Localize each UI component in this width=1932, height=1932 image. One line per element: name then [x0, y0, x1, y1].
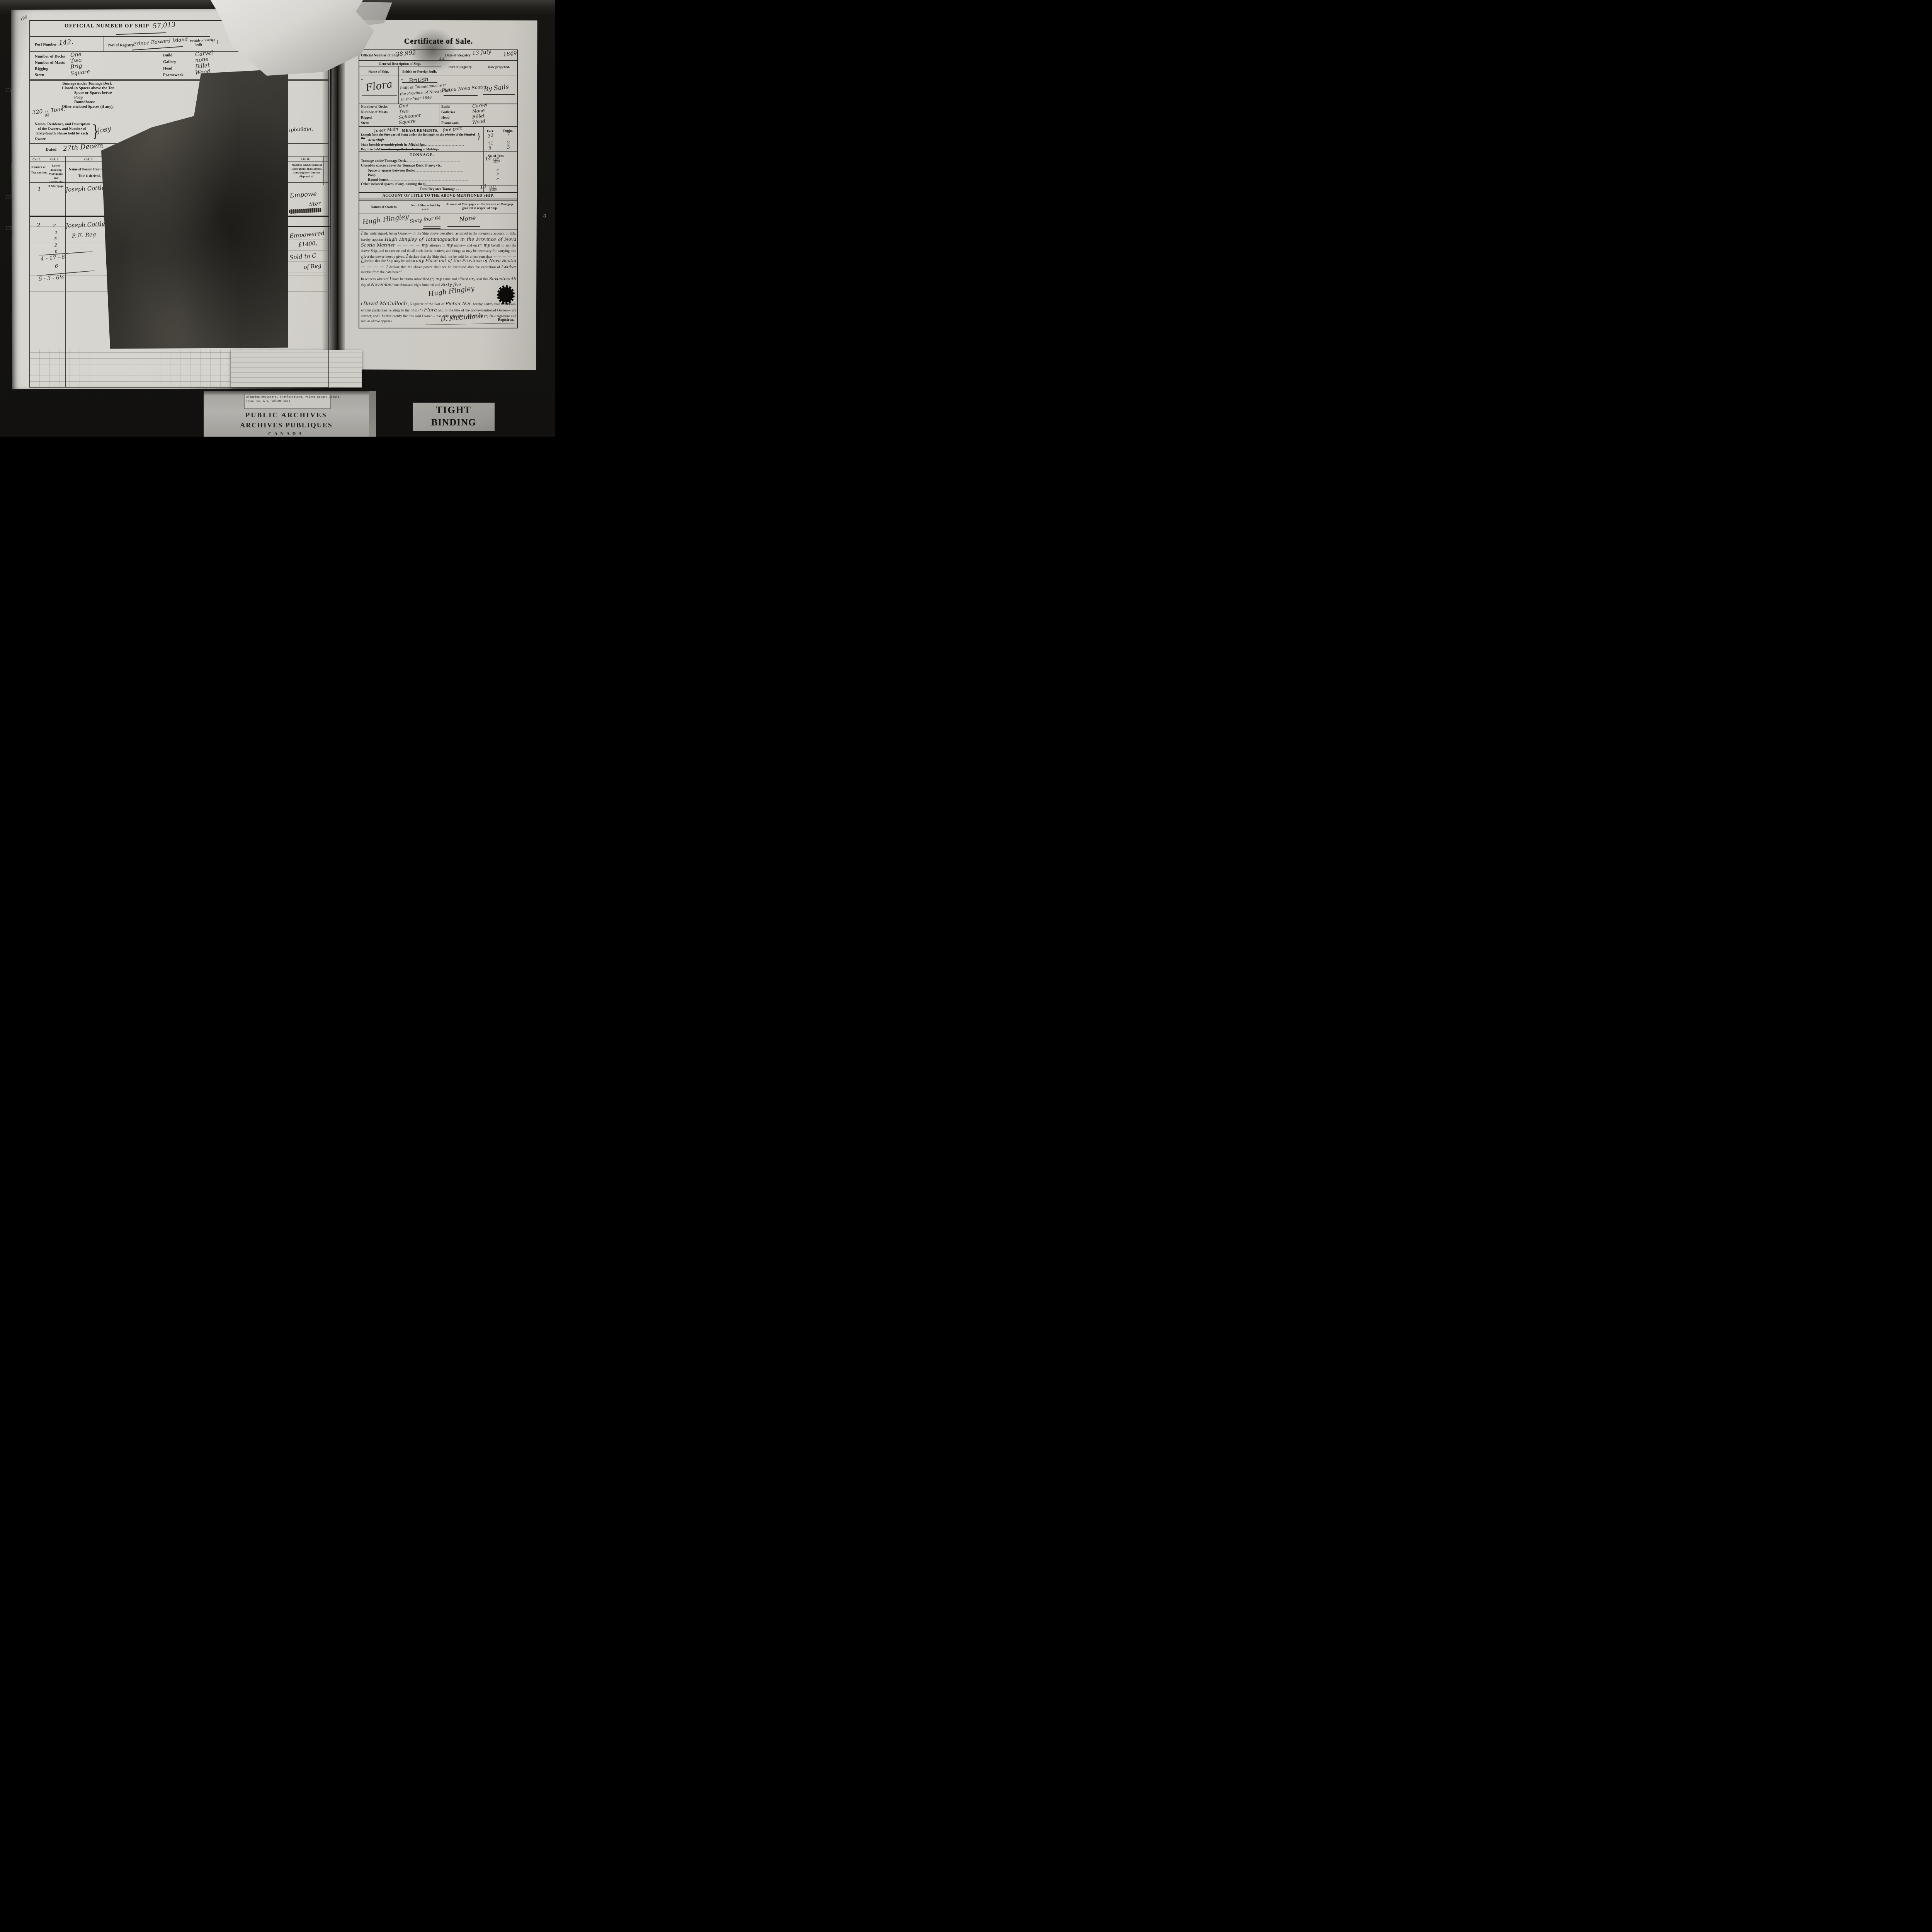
account-title-heading: ACCOUNT OF TITLE TO THE ABOVE-MENTIONED … [359, 194, 517, 198]
t-label: Space or spaces between Decks [368, 168, 415, 172]
measure-feet: 32 [487, 133, 494, 139]
p-script: David McCulloch [363, 301, 407, 307]
p-script: my [484, 243, 490, 248]
rule [359, 104, 517, 104]
spec-label: Build [441, 105, 450, 109]
p-script: my [422, 243, 428, 248]
m-strike: from Tonnage Deck to Ceiling [381, 148, 422, 151]
m-strike: aft side [445, 133, 455, 136]
t-frac: 16323500 [493, 157, 501, 163]
tonnage-row: Space or spaces between Decks [368, 168, 482, 172]
t-label: Tonnage under Tonnage Deck [361, 159, 406, 163]
p-print: name and affixed [442, 277, 469, 281]
cs-date-label: Date of Registry [445, 54, 471, 58]
tonnage-row: Closed-in spaces above the Tonnage Deck,… [361, 163, 482, 167]
wax-seal [497, 285, 515, 304]
rule [444, 95, 478, 96]
typed-line1: Shipping Registers. Charlottetown, Princ… [246, 396, 329, 399]
divider [439, 104, 439, 126]
p-script: my [447, 243, 453, 248]
tonnage-row: Round-house [368, 177, 482, 182]
rule [359, 199, 517, 199]
spec-label: Head [441, 116, 449, 120]
rule [423, 185, 517, 186]
rule [359, 229, 517, 230]
dot-leader [415, 168, 463, 172]
p-script: Flora [424, 307, 437, 313]
m-seg: Depth in hold [361, 148, 381, 151]
t-label: Poop [368, 173, 376, 177]
measurements-heading: MEASUREMENTS. [402, 129, 439, 133]
propelled-col-label: How propelled. [480, 65, 518, 69]
spec-label: Galleries [441, 111, 455, 114]
paper-edge-strip [369, 391, 376, 437]
shares-col-label: No. of Shares held by each. [409, 204, 443, 211]
witness-paragraph: In witness whereof I have hereunto subsc… [361, 276, 516, 288]
dot-leader [388, 177, 468, 181]
registry-col-label: Port of Registry. [441, 65, 480, 69]
spec-label: Stern [361, 121, 369, 125]
p-print: declare that the Ship may be sold at [363, 259, 416, 263]
divider [483, 127, 484, 192]
mort-line: granted in respect of Ship. [462, 206, 498, 210]
right-margin-mark: 0 [543, 213, 546, 219]
measure-tenths: 7 [507, 131, 510, 137]
typed-line2: (R.G. 12, A 1, Volume 164) [246, 400, 329, 403]
p-script: his [489, 313, 495, 318]
spec-label: Number of Decks [361, 105, 388, 109]
t-whole: 14 [485, 156, 492, 162]
rule [359, 126, 517, 127]
total-tonnage-label: Total Register Tonnage . . . . [420, 187, 463, 191]
p-script: twelve [502, 264, 516, 269]
registrar-title: Registrar. [498, 318, 514, 322]
tonnage-heading: TONNAGE. [410, 153, 434, 157]
measure-brace: } [477, 131, 481, 141]
p-print: In witness whereof [361, 277, 389, 281]
binding-line1: TIGHT [413, 405, 495, 416]
p-print: months from the date hereof. [361, 270, 403, 274]
archives-line3: CANADA [204, 431, 369, 437]
p-print: day of [361, 283, 371, 287]
p-print: declare that the above power shall not b… [388, 265, 502, 269]
measure-row2: Main breadth to outside plank in Midship… [361, 143, 481, 146]
dot-leader [406, 158, 460, 162]
p-print: seal this [475, 277, 489, 281]
dotted-rule [394, 58, 428, 59]
dot-leader [376, 173, 471, 176]
measure-tenths: 3 [507, 145, 510, 150]
rule [359, 60, 517, 61]
m-strike: fore [384, 133, 390, 136]
mort-line: Account of Mortgages or Certificates of … [446, 202, 514, 206]
rule [359, 66, 441, 66]
archives-line1: PUBLIC ARCHIVES [204, 411, 369, 419]
spec-label: Framework [441, 121, 459, 125]
m-seg: Length from the [361, 133, 384, 136]
rule [359, 213, 517, 214]
divider [501, 127, 501, 150]
measure-row3: Depth in hold from Tonnage Deck to Ceili… [361, 147, 481, 151]
m-seg: at Midships [422, 148, 439, 151]
dot-leader [384, 138, 457, 141]
asterisk: * [361, 78, 363, 83]
rule [362, 95, 397, 96]
dotted-rule [469, 58, 515, 59]
certify-paragraph: I David McCulloch , Registrar of the Por… [361, 301, 516, 324]
p-script: my [435, 276, 442, 281]
binding-line2: BINDING [413, 417, 495, 428]
m-seg: part of Stem under the Bowsprit to the [390, 133, 445, 136]
rule [402, 82, 437, 83]
tight-binding-card: TIGHT BINDING [413, 403, 495, 431]
mortgages-col-label: Account of Mortgages or Certificates of … [443, 202, 517, 210]
sale-paragraph: I declare that the Ship may be sold at a… [361, 258, 516, 276]
m-seg: stern [368, 138, 376, 142]
p-print: attorney in [428, 244, 446, 248]
t-whole: 14 [480, 184, 487, 190]
m-strike: to outside plank [381, 143, 403, 146]
ditto-mark: 〃 [495, 176, 499, 182]
owners-col-label: Names of Owners. [359, 205, 409, 209]
m-strike: aloft [376, 138, 384, 142]
p-script: November [371, 282, 393, 287]
built-col-label: British or Foreign built. [398, 70, 441, 73]
tonnage-row: Poop [368, 173, 482, 177]
cs-small-value: 44 [439, 56, 445, 62]
rule [359, 192, 517, 193]
p-script: Pictou N.S. [446, 301, 472, 306]
certificate-title: Certificate of Sale. [361, 37, 516, 46]
tonnage-row: Tonnage under Tonnage Deck [361, 158, 482, 163]
t-frac: 16323500 [488, 185, 498, 192]
name-of-ship-label: Name of Ship. [359, 70, 398, 73]
rule [359, 200, 517, 201]
archives-line2: ARCHIVES PUBLIQUES [204, 421, 369, 429]
general-description-heading: General Description of Ship. [359, 62, 441, 66]
p-script: Seventeenth [489, 276, 516, 281]
p-script: my [469, 276, 476, 281]
dot-leader [425, 143, 464, 146]
m-seg: Main breadth [361, 143, 381, 146]
typed-reference-label: Shipping Registers. Charlottetown, Princ… [244, 394, 331, 409]
p-print: have hereunto subscribed (*) [391, 277, 435, 281]
rule [359, 75, 517, 75]
rule [447, 226, 480, 227]
p-print: name— and on (*) [453, 244, 483, 248]
archival-photo-ship-register: 196 Cp Cp Cp OFFICIAL NUMBER OF SHIP 57,… [0, 0, 555, 437]
rule [359, 151, 517, 152]
cs-number-label: Official Number of Ship [361, 54, 399, 58]
p-print: , Registrar of the Port of [407, 303, 446, 306]
measure-row1-line2: stern aloft [368, 138, 476, 142]
p-print: one thousand eight hundred and [393, 283, 441, 287]
m-script: in Midships [404, 143, 425, 146]
rule [483, 94, 515, 95]
spec-label: Rigged [361, 116, 372, 120]
spec-label: Number of Masts [361, 111, 388, 114]
rule [423, 226, 440, 227]
m-seg: of the [455, 133, 464, 136]
t-label: Round-house [368, 178, 388, 182]
dot-leader [439, 147, 471, 150]
